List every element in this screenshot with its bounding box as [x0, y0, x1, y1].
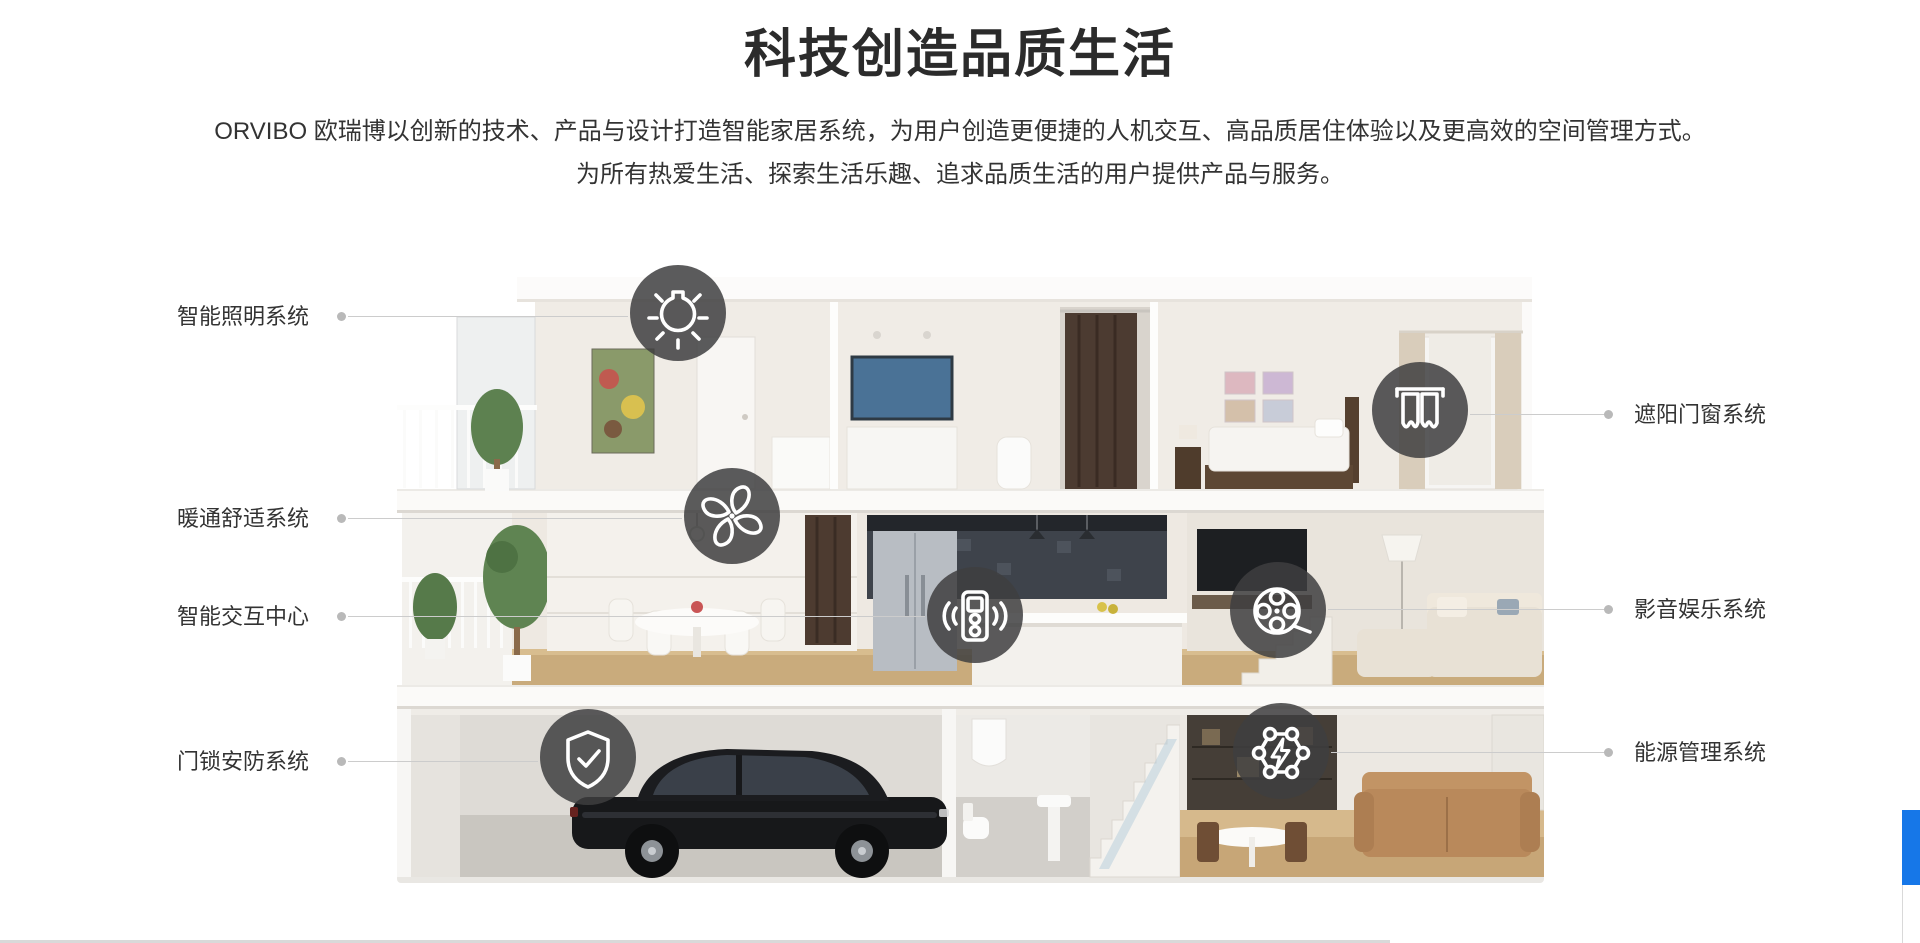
- page-description-line1: ORVIBO 欧瑞博以创新的技术、产品与设计打造智能家居系统，为用户创造更便捷的…: [0, 110, 1920, 153]
- label-av-entertainment: 影音娱乐系统: [1634, 596, 1766, 624]
- callout-dot-door-security: [337, 757, 346, 766]
- leather-sofa: [1354, 772, 1540, 857]
- callout-dot-hvac-comfort: [337, 514, 346, 523]
- page-title: 科技创造品质生活: [0, 12, 1920, 87]
- page-root: 科技创造品质生活 ORVIBO 欧瑞博以创新的技术、产品与设计打造智能家居系统，…: [0, 0, 1920, 943]
- page-description-line2: 为所有热爱生活、探索生活乐趣、追求品质生活的用户提供产品与服务。: [0, 153, 1920, 196]
- label-shading-windows: 遮阳门窗系统: [1634, 401, 1766, 429]
- label-hvac-comfort: 暖通舒适系统: [177, 505, 309, 533]
- label-door-security: 门锁安防系统: [177, 748, 309, 776]
- bulb-icon-svg: [628, 263, 728, 363]
- callout-line-hvac-comfort: [348, 518, 682, 519]
- label-energy-management: 能源管理系统: [1634, 739, 1766, 767]
- fan-icon-svg: [682, 466, 782, 566]
- shield-check-icon-svg: [538, 707, 638, 807]
- film-reel-icon: [1228, 560, 1328, 660]
- energy-network-icon: [1231, 701, 1331, 801]
- film-reel-icon-svg: [1228, 560, 1328, 660]
- label-interaction-center: 智能交互中心: [177, 603, 309, 631]
- callout-line-energy: [1331, 752, 1607, 753]
- remote-control-icon-svg: [925, 565, 1025, 665]
- energy-network-icon-svg: [1231, 701, 1331, 801]
- callout-line-av: [1328, 609, 1607, 610]
- remote-control-icon: [925, 565, 1025, 665]
- side-widget-line: [1902, 885, 1903, 943]
- label-smart-lighting: 智能照明系统: [177, 303, 309, 331]
- callout-dot-interaction-center: [337, 612, 346, 621]
- ground-staircase: [1090, 715, 1180, 877]
- page-description: ORVIBO 欧瑞博以创新的技术、产品与设计打造智能家居系统，为用户创造更便捷的…: [0, 110, 1920, 196]
- callout-dot-smart-lighting: [337, 312, 346, 321]
- callout-line-interaction-center: [348, 616, 925, 617]
- floating-sidebar-button[interactable]: [1902, 810, 1920, 885]
- bulb-icon: [628, 263, 728, 363]
- curtain-icon: [1370, 360, 1470, 460]
- callout-dot-shading: [1604, 410, 1613, 419]
- callout-dot-energy: [1604, 748, 1613, 757]
- callout-line-door-security: [348, 761, 538, 762]
- callout-line-shading: [1470, 414, 1607, 415]
- floor-slab-upper: [397, 489, 1544, 513]
- curtain-icon-svg: [1370, 360, 1470, 460]
- callout-line-smart-lighting: [348, 316, 628, 317]
- top-floor: [397, 299, 1532, 491]
- callout-dot-av: [1604, 605, 1613, 614]
- fan-icon: [682, 466, 782, 566]
- shield-check-icon: [538, 707, 638, 807]
- floor-slab-lower: [397, 685, 1544, 709]
